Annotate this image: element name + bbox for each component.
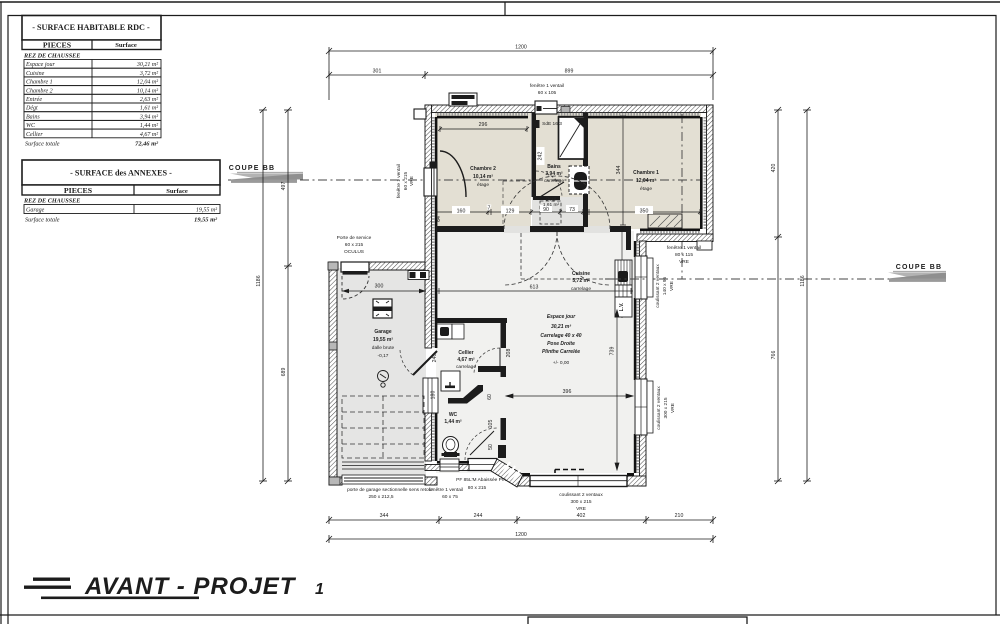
svg-text:4,67 m²: 4,67 m² xyxy=(140,131,158,138)
svg-text:-0,17: -0,17 xyxy=(378,353,389,359)
svg-text:1,61 m²: 1,61 m² xyxy=(543,202,560,208)
svg-text:coulissant 2 ventaux: coulissant 2 ventaux xyxy=(656,386,662,430)
svg-text:300 x 215: 300 x 215 xyxy=(570,499,591,505)
svg-text:COUPE BB: COUPE BB xyxy=(896,264,943,271)
svg-text:coulissant 2 ventaux: coulissant 2 ventaux xyxy=(559,492,603,498)
svg-text:1: 1 xyxy=(315,581,324,598)
svg-text:fenêtre 1 ventail: fenêtre 1 ventail xyxy=(530,83,564,89)
svg-text:étage: étage xyxy=(477,182,489,188)
svg-text:Cuisine: Cuisine xyxy=(572,271,590,277)
svg-text:72,46 m²: 72,46 m² xyxy=(135,140,159,147)
svg-text:1200: 1200 xyxy=(515,532,527,538)
svg-text:208: 208 xyxy=(506,349,512,358)
svg-text:1200: 1200 xyxy=(515,45,527,51)
svg-text:Bains: Bains xyxy=(547,164,561,170)
svg-text:Dégt: Dégt xyxy=(545,197,556,203)
svg-text:2,63 m²: 2,63 m² xyxy=(140,97,158,103)
svg-text:10,14 m²: 10,14 m² xyxy=(473,174,493,180)
svg-text:19,55 m²: 19,55 m² xyxy=(196,207,217,213)
svg-text:244: 244 xyxy=(474,513,483,519)
svg-text:402: 402 xyxy=(577,513,586,519)
svg-text:350: 350 xyxy=(640,209,649,215)
svg-text:7: 7 xyxy=(488,206,491,212)
svg-text:Garage: Garage xyxy=(374,329,391,335)
svg-text:240: 240 xyxy=(432,354,438,363)
svg-text:420: 420 xyxy=(771,164,777,173)
svg-text:73: 73 xyxy=(569,207,575,213)
svg-text:301: 301 xyxy=(373,69,382,75)
svg-text:AVANT - PROJET: AVANT - PROJET xyxy=(84,573,297,600)
svg-text:60 x 215: 60 x 215 xyxy=(345,242,364,248)
svg-text:766: 766 xyxy=(771,351,777,360)
svg-text:497: 497 xyxy=(281,182,287,191)
svg-text:Garage: Garage xyxy=(26,207,45,213)
svg-text:60 x 215: 60 x 215 xyxy=(403,171,409,190)
svg-text:étage: étage xyxy=(640,186,652,192)
svg-text:COUPE BB: COUPE BB xyxy=(229,165,276,172)
svg-text:Cellier: Cellier xyxy=(26,132,43,138)
svg-text:1,61 m²: 1,61 m² xyxy=(140,106,158,112)
svg-text:210: 210 xyxy=(675,513,684,519)
svg-text:296: 296 xyxy=(479,122,488,128)
svg-text:1186: 1186 xyxy=(800,275,806,286)
svg-text:250 x 212,5: 250 x 212,5 xyxy=(368,494,393,500)
svg-text:300 x 215: 300 x 215 xyxy=(663,397,669,418)
svg-text:Cuisine: Cuisine xyxy=(26,71,45,77)
svg-text:4,67 m²: 4,67 m² xyxy=(457,357,475,363)
svg-text:- SURFACE des ANNEXES -: - SURFACE des ANNEXES - xyxy=(70,169,172,178)
svg-text:REZ DE CHAUSSEE: REZ DE CHAUSSEE xyxy=(23,197,80,204)
svg-text:PIECES: PIECES xyxy=(43,41,71,50)
svg-text:PIECES: PIECES xyxy=(64,186,92,195)
svg-text:L.V.: L.V. xyxy=(619,302,625,311)
svg-text:Espace jour: Espace jour xyxy=(25,62,55,68)
svg-text:344: 344 xyxy=(380,513,389,519)
svg-text:80 x 115: 80 x 115 xyxy=(675,252,693,258)
svg-text:Pose Droite: Pose Droite xyxy=(547,341,575,347)
svg-text:60: 60 xyxy=(487,394,493,400)
svg-text:10,14 m²: 10,14 m² xyxy=(137,87,158,94)
svg-text:VRE: VRE xyxy=(409,176,415,186)
svg-text:Surface: Surface xyxy=(166,188,188,195)
svg-text:739: 739 xyxy=(610,347,616,356)
svg-text:19,55 m²: 19,55 m² xyxy=(373,337,393,343)
svg-text:Surface: Surface xyxy=(115,42,137,49)
svg-text:VRE: VRE xyxy=(669,281,675,291)
svg-text:porte de garage sectionnelle s: porte de garage sectionnelle sens retour xyxy=(347,487,433,493)
svg-text:396: 396 xyxy=(563,389,572,395)
svg-text:Entrée: Entrée xyxy=(25,97,42,103)
svg-text:Plinthe Carrelée: Plinthe Carrelée xyxy=(542,349,580,355)
svg-text:1,44 m²: 1,44 m² xyxy=(444,419,462,425)
svg-text:1,44 m²: 1,44 m² xyxy=(140,122,158,129)
svg-text:fenêtre 1 ventail: fenêtre 1 ventail xyxy=(396,164,402,198)
svg-text:129: 129 xyxy=(506,209,515,215)
svg-text:VRE: VRE xyxy=(679,259,689,265)
svg-text:+/- 0,00: +/- 0,00 xyxy=(553,360,570,366)
svg-text:fenêtre 1 ventail: fenêtre 1 ventail xyxy=(667,245,701,251)
svg-text:SdE 16,3: SdE 16,3 xyxy=(542,121,562,127)
svg-text:Chambre 1: Chambre 1 xyxy=(26,80,53,86)
svg-text:30,21 m²: 30,21 m² xyxy=(551,324,571,330)
svg-text:64: 64 xyxy=(436,216,442,222)
svg-text:Surface totale: Surface totale xyxy=(25,216,60,223)
svg-text:fenêtre 1 ventail: fenêtre 1 ventail xyxy=(429,487,463,493)
svg-text:Porte de service: Porte de service xyxy=(337,235,372,241)
svg-text:205: 205 xyxy=(466,318,475,324)
svg-text:WC: WC xyxy=(449,412,458,418)
svg-text:VRE: VRE xyxy=(670,403,676,413)
svg-text:3,94 m²: 3,94 m² xyxy=(545,171,563,177)
svg-text:899: 899 xyxy=(565,69,574,75)
svg-text:19,55 m²: 19,55 m² xyxy=(194,216,218,223)
svg-text:12,04 m²: 12,04 m² xyxy=(137,79,158,86)
svg-text:50: 50 xyxy=(488,444,494,450)
svg-text:3,72 m²: 3,72 m² xyxy=(139,71,158,77)
svg-text:Chambre 1: Chambre 1 xyxy=(633,170,659,176)
svg-text:- SURFACE HABITABLE RDC -: - SURFACE HABITABLE RDC - xyxy=(32,23,150,32)
svg-text:160: 160 xyxy=(457,209,466,215)
svg-text:Espace jour: Espace jour xyxy=(547,314,576,320)
svg-text:105: 105 xyxy=(488,420,494,429)
svg-text:Chambre 2: Chambre 2 xyxy=(26,88,53,94)
svg-text:80 x 215: 80 x 215 xyxy=(468,485,487,491)
svg-text:30,21 m²: 30,21 m² xyxy=(136,62,158,68)
svg-text:Bains: Bains xyxy=(26,114,40,120)
svg-text:WC: WC xyxy=(26,123,36,129)
svg-text:1186: 1186 xyxy=(256,275,262,286)
svg-text:242: 242 xyxy=(538,152,544,161)
svg-text:VRE: VRE xyxy=(576,506,586,512)
svg-text:60 x 105: 60 x 105 xyxy=(538,90,557,96)
svg-text:Chambre 2: Chambre 2 xyxy=(470,166,496,172)
svg-text:carrelage: carrelage xyxy=(571,286,591,292)
svg-text:300: 300 xyxy=(375,284,384,290)
svg-text:613: 613 xyxy=(530,285,539,291)
svg-text:REZ DE CHAUSSEE: REZ DE CHAUSSEE xyxy=(23,52,80,59)
svg-text:60 x 75: 60 x 75 xyxy=(442,494,458,500)
svg-text:180: 180 xyxy=(431,391,437,400)
svg-text:Cellier: Cellier xyxy=(458,350,473,356)
svg-text:PF 85L'M Abaissée Pm: PF 85L'M Abaissée Pm xyxy=(456,477,506,483)
svg-text:carrelage: carrelage xyxy=(544,178,564,184)
svg-text:Surface totale: Surface totale xyxy=(25,140,60,147)
svg-text:carrelage: carrelage xyxy=(456,364,476,370)
svg-text:coulissant 2 ventaux: coulissant 2 ventaux xyxy=(655,264,661,308)
svg-text:OCULUS: OCULUS xyxy=(344,249,364,255)
svg-text:12,04 m²: 12,04 m² xyxy=(636,178,656,184)
svg-text:344: 344 xyxy=(616,166,622,175)
svg-text:Carrelage 40 x 40: Carrelage 40 x 40 xyxy=(540,333,581,339)
svg-text:140 x 95: 140 x 95 xyxy=(662,276,668,295)
svg-text:3,94 m²: 3,94 m² xyxy=(139,113,158,120)
svg-text:dalle brute: dalle brute xyxy=(372,345,395,351)
svg-text:689: 689 xyxy=(281,368,287,377)
svg-text:Dégt: Dégt xyxy=(25,106,38,112)
